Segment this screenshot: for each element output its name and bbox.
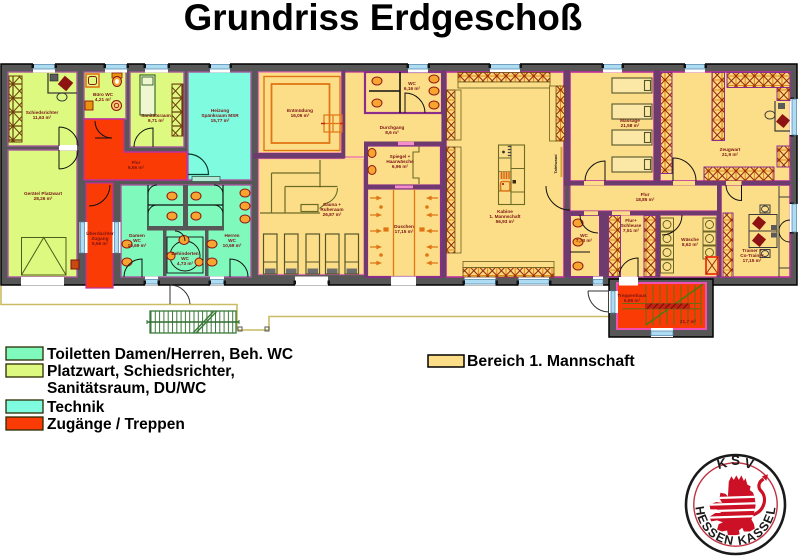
svg-text:6,16 m²: 6,16 m² xyxy=(404,86,421,91)
svg-text:Grundriss Erdgeschoß: Grundriss Erdgeschoß xyxy=(184,0,583,38)
svg-text:15,77 m²: 15,77 m² xyxy=(211,118,230,123)
svg-text:16,06 m²: 16,06 m² xyxy=(291,113,310,118)
svg-text:Tafelwand: Tafelwand xyxy=(553,154,558,174)
svg-text:18,85 m²: 18,85 m² xyxy=(636,197,655,202)
svg-text:Zugänge / Treppen: Zugänge / Treppen xyxy=(47,416,185,433)
svg-text:7,73 m²: 7,73 m² xyxy=(576,238,593,243)
svg-text:26,87 m²: 26,87 m² xyxy=(323,212,342,217)
svg-text:10,69 m²: 10,69 m² xyxy=(223,243,242,248)
svg-text:10,69 m²: 10,69 m² xyxy=(128,243,147,248)
svg-text:17,15 m²: 17,15 m² xyxy=(395,229,414,234)
svg-text:11,63 m²: 11,63 m² xyxy=(33,115,52,120)
svg-text:56,93 m²: 56,93 m² xyxy=(496,219,515,224)
svg-text:S: S xyxy=(731,453,740,468)
svg-text:8,62 m²: 8,62 m² xyxy=(682,242,699,247)
svg-text:Toiletten Damen/Herren, Beh. W: Toiletten Damen/Herren, Beh. WC xyxy=(47,346,293,363)
svg-text:4,73 m²: 4,73 m² xyxy=(177,261,194,266)
svg-text:21,9 m²: 21,9 m² xyxy=(722,152,739,157)
svg-text:9,56 m²: 9,56 m² xyxy=(128,165,145,170)
svg-text:9,88 m²: 9,88 m² xyxy=(624,298,641,303)
svg-text:Bereich 1. Mannschaft: Bereich 1. Mannschaft xyxy=(467,353,635,370)
svg-text:7,51 m²: 7,51 m² xyxy=(623,228,640,233)
svg-text:Technik: Technik xyxy=(47,399,105,416)
svg-text:21,58 m²: 21,58 m² xyxy=(621,123,640,128)
svg-text:5,56 m²: 5,56 m² xyxy=(92,241,109,246)
svg-text:17,15 m²: 17,15 m² xyxy=(743,258,762,263)
svg-text:6,96 m²: 6,96 m² xyxy=(392,164,409,169)
svg-text:Platzwart, Schiedsrichter,: Platzwart, Schiedsrichter, xyxy=(47,363,235,380)
svg-text:4,21 m²: 4,21 m² xyxy=(95,97,112,102)
svg-text:21,7 m²: 21,7 m² xyxy=(680,319,697,324)
svg-text:28,26 m²: 28,26 m² xyxy=(34,196,53,201)
svg-text:8,6 m²: 8,6 m² xyxy=(385,130,399,135)
svg-text:Sanitätsraum, DU/WC: Sanitätsraum, DU/WC xyxy=(47,380,206,397)
svg-text:9,71 m²: 9,71 m² xyxy=(148,118,165,123)
